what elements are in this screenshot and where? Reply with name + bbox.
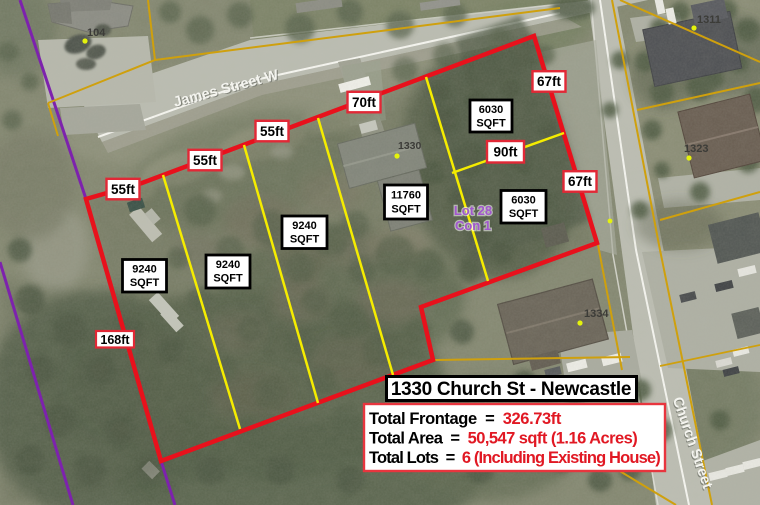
svg-text:90ft: 90ft	[493, 145, 518, 160]
svg-text:70ft: 70ft	[352, 95, 377, 110]
svg-text:6030: 6030	[511, 195, 535, 207]
svg-text:55ft: 55ft	[111, 182, 136, 197]
svg-text:SQFT: SQFT	[476, 118, 506, 130]
svg-text:SQFT: SQFT	[213, 273, 243, 285]
svg-text:1311: 1311	[697, 14, 721, 26]
svg-text:SQFT: SQFT	[509, 208, 539, 220]
svg-text:6030: 6030	[479, 104, 503, 116]
svg-text:Total Frontage = 326.73ft: Total Frontage = 326.73ft	[369, 410, 562, 428]
svg-text:1334: 1334	[584, 308, 609, 320]
svg-text:55ft: 55ft	[193, 153, 218, 168]
svg-text:1330 Church St - Newcastle: 1330 Church St - Newcastle	[391, 379, 631, 400]
svg-text:Total Lots = 6 (Including Ex: Total Lots = 6 (Including Existing House…	[369, 449, 660, 467]
svg-text:1323: 1323	[684, 143, 708, 155]
svg-text:104: 104	[87, 27, 106, 39]
svg-text:11760: 11760	[391, 190, 421, 202]
svg-text:9240: 9240	[132, 264, 156, 276]
svg-text:67ft: 67ft	[568, 174, 593, 189]
svg-text:Con 1: Con 1	[455, 218, 491, 233]
svg-text:67ft: 67ft	[537, 74, 562, 89]
svg-text:1330: 1330	[398, 140, 422, 152]
svg-text:Lot 28: Lot 28	[454, 203, 492, 218]
svg-text:SQFT: SQFT	[290, 234, 320, 246]
svg-text:55ft: 55ft	[260, 124, 285, 139]
svg-text:SQFT: SQFT	[130, 277, 160, 289]
svg-text:9240: 9240	[216, 259, 240, 271]
svg-text:SQFT: SQFT	[391, 204, 421, 216]
svg-text:168ft: 168ft	[100, 333, 130, 347]
svg-text:Total Area = 50,547 sqft (1.: Total Area = 50,547 sqft (1.16 Acres)	[369, 430, 637, 448]
svg-text:9240: 9240	[292, 220, 316, 232]
